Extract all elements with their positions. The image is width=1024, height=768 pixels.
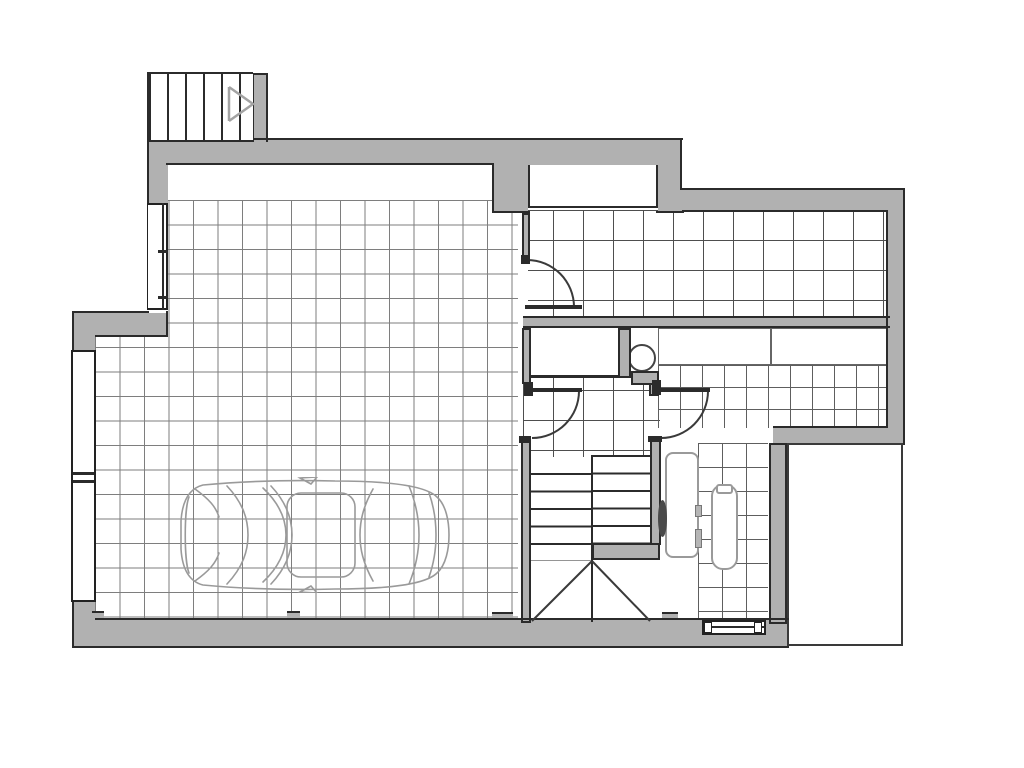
bath-tap-lower — [695, 529, 702, 548]
understair-diagonal-left — [532, 561, 592, 621]
door-stub-hall-left-top — [524, 382, 533, 396]
edge-midwall-bottom — [523, 326, 890, 328]
wall-top-right-wing — [682, 190, 905, 212]
stairs-flight-left — [531, 473, 591, 561]
wall-doorframe-top — [522, 213, 530, 257]
window-garage-tick1 — [73, 472, 94, 475]
edge-left-upper-outer — [147, 138, 149, 205]
terrace — [787, 443, 903, 646]
wall-bottom-main — [72, 620, 787, 648]
window-garage-tick2 — [73, 480, 94, 483]
car-top-view — [175, 477, 455, 593]
understair-diagonal-right — [592, 561, 650, 621]
wall-bathroom-right — [769, 443, 787, 624]
window-upper-left-tick1 — [158, 250, 168, 253]
door-leaf-hall-left — [530, 388, 582, 392]
wall-left-step-band — [72, 313, 168, 337]
edge-midwall-top — [523, 316, 890, 318]
arrow-shape — [229, 87, 253, 121]
stair-direction-arrow — [226, 84, 256, 124]
stairs-understair-cross — [530, 560, 652, 622]
window-garage-left — [71, 350, 96, 602]
wall-rightwing-bottom — [773, 428, 905, 443]
car-body — [181, 481, 449, 590]
car-front-bumper — [185, 497, 189, 573]
edge-pier-left-face — [492, 163, 494, 213]
washbasin — [628, 344, 656, 372]
wall-niche — [528, 162, 658, 208]
door-stub-hall-right — [652, 380, 661, 395]
wall-pier-right — [658, 140, 682, 213]
bath-tap-upper — [695, 505, 702, 517]
edge-topright-outer — [682, 188, 905, 190]
window-bathroom-end-left — [704, 622, 712, 633]
edge-room-top-face — [166, 163, 494, 165]
edge-pier-right-bottom — [656, 211, 684, 213]
wall-hall-left — [522, 328, 531, 384]
wall-pier-middle — [492, 165, 528, 213]
door-stub-hall-left-bottom — [519, 436, 531, 443]
door-leaf-bathroom — [658, 500, 667, 537]
door-arc-hall-right — [661, 391, 709, 439]
car-spoiler-line — [429, 493, 436, 577]
closet-front-line — [528, 375, 618, 378]
floor-plan — [0, 0, 1024, 768]
kitchen-counter — [658, 328, 888, 365]
door-leaf-hall-right — [659, 388, 710, 392]
window-upper-left-mullion — [162, 203, 164, 310]
stairs-flight-right — [593, 455, 650, 543]
wall-closet-side — [618, 328, 631, 378]
closet-niche — [528, 328, 618, 375]
edge-bottom-outer — [72, 646, 789, 648]
car-rear-window — [360, 489, 373, 581]
wall-top-main — [148, 140, 682, 165]
edge-stepband-top — [72, 311, 149, 313]
window-upper-left-tick2 — [158, 296, 168, 299]
kitchen-counter-divider — [770, 328, 772, 365]
car-headlight-top — [195, 489, 219, 517]
door-stub-upper — [521, 255, 530, 264]
bathtub — [711, 484, 738, 570]
car-trunk-line — [409, 486, 419, 584]
window-upper-left — [147, 203, 168, 310]
edge-bottomwall-top — [95, 618, 789, 620]
edge-right-outer — [903, 188, 905, 445]
car-headlight-bottom — [195, 553, 219, 581]
edge-stepband-bottom — [95, 335, 168, 337]
edge-pier-bottom-face — [492, 211, 530, 213]
edge-rightwing-right-face — [886, 210, 888, 428]
car-roof — [287, 493, 355, 577]
shower-tray — [665, 452, 699, 558]
door-stub-stairwall-cap — [648, 436, 662, 442]
edge-stepband-right — [166, 311, 168, 337]
window-bathroom-end-right — [754, 622, 762, 633]
wall-left-upper-corner — [147, 140, 168, 203]
door-leaf-upper — [525, 305, 582, 309]
edge-top-step-outer — [680, 138, 682, 190]
wall-stair-landing-band — [592, 543, 660, 560]
car-hood-line — [227, 486, 248, 584]
edge-rightwing-bottom-face — [773, 426, 888, 428]
edge-rightwing-top-face — [682, 210, 888, 212]
bathtub-faucet — [716, 484, 733, 494]
